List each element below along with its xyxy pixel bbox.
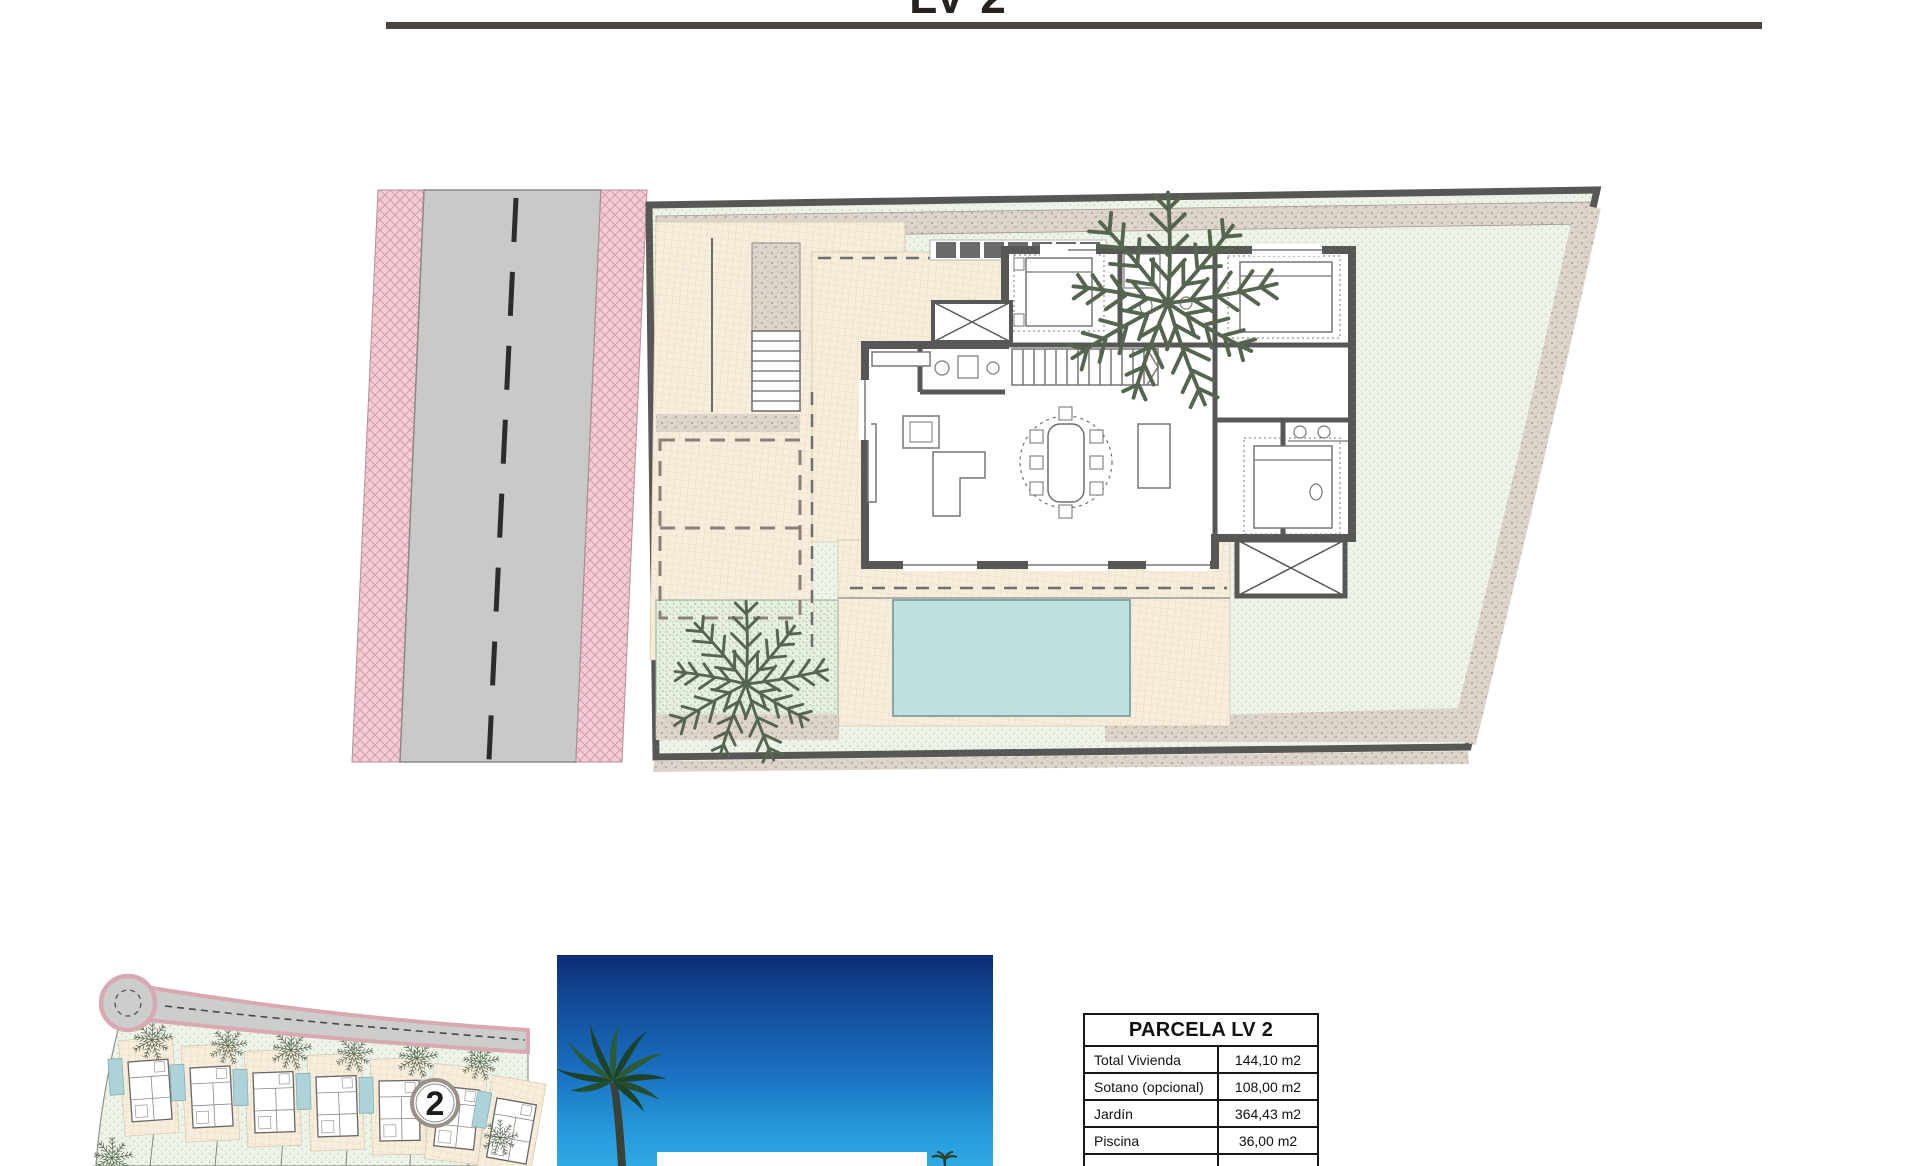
lifestyle-photo [557, 955, 993, 1166]
void-box-1 [933, 302, 1011, 342]
white-villa-facade [657, 1152, 927, 1166]
parcel-area-table: PARCELA LV 2 Total Vivienda 144,10 m2 So… [1083, 1013, 1319, 1166]
bed-2 [1228, 256, 1340, 338]
road-asphalt [400, 190, 601, 762]
void-box-2 [1237, 540, 1345, 596]
table-title: PARCELA LV 2 [1084, 1014, 1318, 1046]
roundabout [101, 976, 155, 1030]
row-value: 364,43 m2 [1218, 1100, 1318, 1127]
plot-number-badge: 2 [412, 1080, 458, 1126]
bed-1 [1014, 255, 1104, 331]
row-label: Total Vivienda [1084, 1046, 1218, 1073]
table-row: Piscina 36,00 m2 [1084, 1127, 1318, 1154]
gravel-pad [752, 243, 800, 331]
row-label: Jardín [1084, 1100, 1218, 1127]
brochure-page: LV 2 [0, 0, 1920, 1166]
site-plan: 2 [92, 976, 546, 1166]
row-value: 108,00 m2 [1218, 1073, 1318, 1100]
gravel-strip-parking [656, 414, 800, 432]
plot-lv2 [649, 190, 1597, 772]
row-label: Sotano (opcional) [1084, 1073, 1218, 1100]
bed-3 [1244, 438, 1340, 534]
row-value: 36,00 m2 [1218, 1127, 1318, 1154]
plot-number-label: 2 [426, 1085, 445, 1123]
access-road [352, 190, 647, 762]
exterior-stairs [752, 331, 800, 411]
table-row-cutoff [1084, 1154, 1318, 1166]
table-row: Sotano (opcional) 108,00 m2 [1084, 1073, 1318, 1100]
photo-overlay [557, 955, 993, 1166]
table-row: Jardín 364,43 m2 [1084, 1100, 1318, 1127]
table-row: Total Vivienda 144,10 m2 [1084, 1046, 1318, 1073]
row-value: 144,10 m2 [1218, 1046, 1318, 1073]
swimming-pool [893, 600, 1130, 716]
row-label: Piscina [1084, 1127, 1218, 1154]
palm-tree-silhouette-icon [557, 1022, 667, 1166]
distant-palm-icon [932, 1152, 957, 1166]
